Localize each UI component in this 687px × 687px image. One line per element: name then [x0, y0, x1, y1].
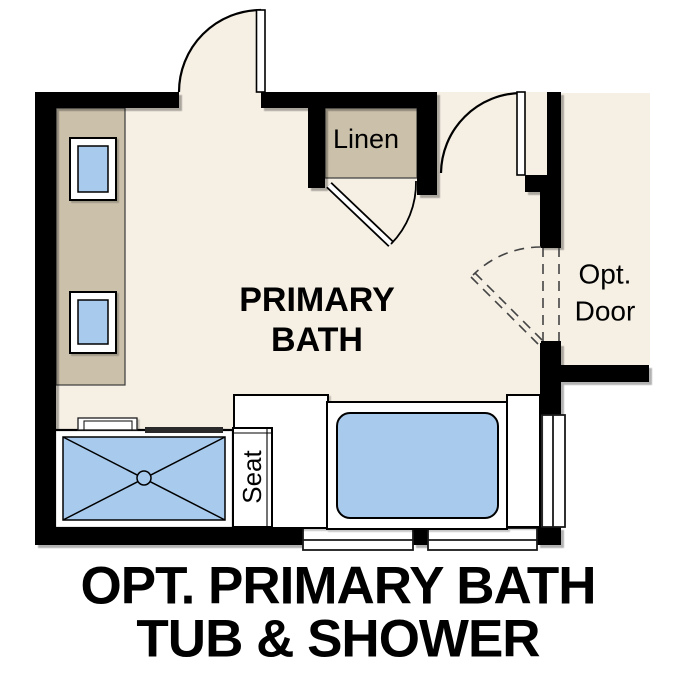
tub-deck-right	[507, 395, 540, 527]
wall-linen-right-pier	[417, 108, 437, 195]
wall-right-top	[547, 92, 561, 175]
linen-label: Linen	[333, 124, 399, 154]
wall-top-left	[35, 92, 179, 108]
wall-bottom-left	[35, 528, 303, 545]
hall-door-leaf	[517, 92, 525, 175]
sink-2-basin	[78, 300, 108, 344]
seat-label: Seat	[237, 449, 267, 503]
sink-1-basin	[78, 146, 108, 192]
optional-door-label-line2: Door	[575, 296, 636, 327]
wall-bottom-right	[537, 527, 561, 545]
wall-linen-left-pier	[308, 108, 325, 188]
wall-top-mid	[261, 92, 437, 108]
room-label-line1: PRIMARY	[239, 281, 395, 319]
shower-niche-outer	[78, 418, 137, 430]
wall-right-horizontal	[556, 365, 649, 382]
window-bottom-1	[303, 528, 413, 550]
caption-line2: TUB & SHOWER	[136, 610, 540, 669]
shower-drain	[137, 471, 151, 485]
tub-basin	[337, 413, 498, 518]
entry-door-swing-area	[179, 10, 261, 92]
floor-plan-page: Linen PRIMARY BATH Opt. Door Seat OPT. P…	[0, 0, 687, 687]
room-label-line2: BATH	[271, 321, 363, 359]
wall-right-step	[525, 175, 561, 192]
caption: OPT. PRIMARY BATH TUB & SHOWER	[81, 557, 596, 669]
caption-line1: OPT. PRIMARY BATH	[81, 557, 596, 616]
wall-right-upper	[540, 192, 561, 247]
entry-door-leaf	[257, 10, 266, 92]
optional-door-label-line1: Opt.	[579, 259, 632, 290]
wall-left	[35, 92, 56, 545]
floor-plan: Linen PRIMARY BATH Opt. Door Seat OPT. P…	[0, 0, 687, 687]
window-bottom-2	[428, 528, 537, 550]
wall-bottom-mid	[413, 528, 428, 545]
shower-door-panel	[145, 427, 223, 433]
